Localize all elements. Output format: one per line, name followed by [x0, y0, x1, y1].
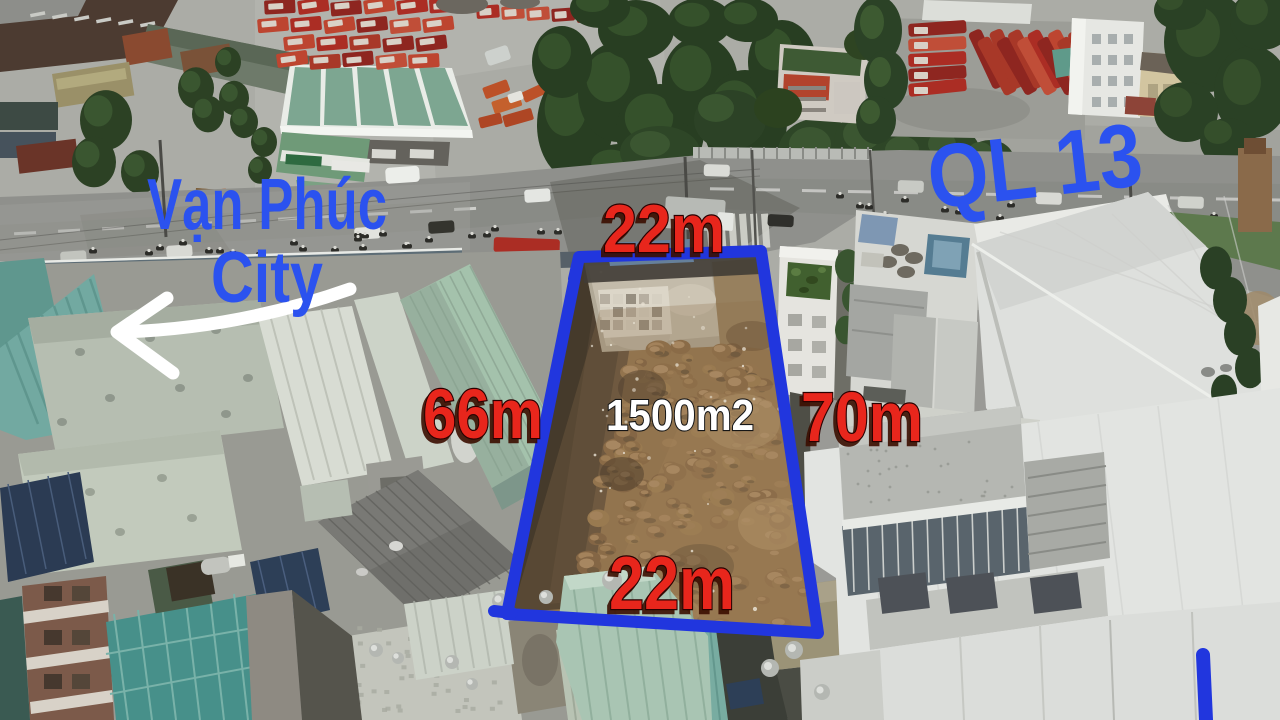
- svg-text:70m: 70m: [801, 378, 923, 456]
- svg-text:22m: 22m: [603, 191, 725, 267]
- svg-text:22m: 22m: [609, 541, 735, 625]
- svg-text:66m: 66m: [423, 375, 543, 453]
- svg-text:1500m2: 1500m2: [606, 391, 754, 440]
- svg-text:City: City: [211, 238, 323, 318]
- svg-text:Vạn Phúc: Vạn Phúc: [147, 165, 387, 245]
